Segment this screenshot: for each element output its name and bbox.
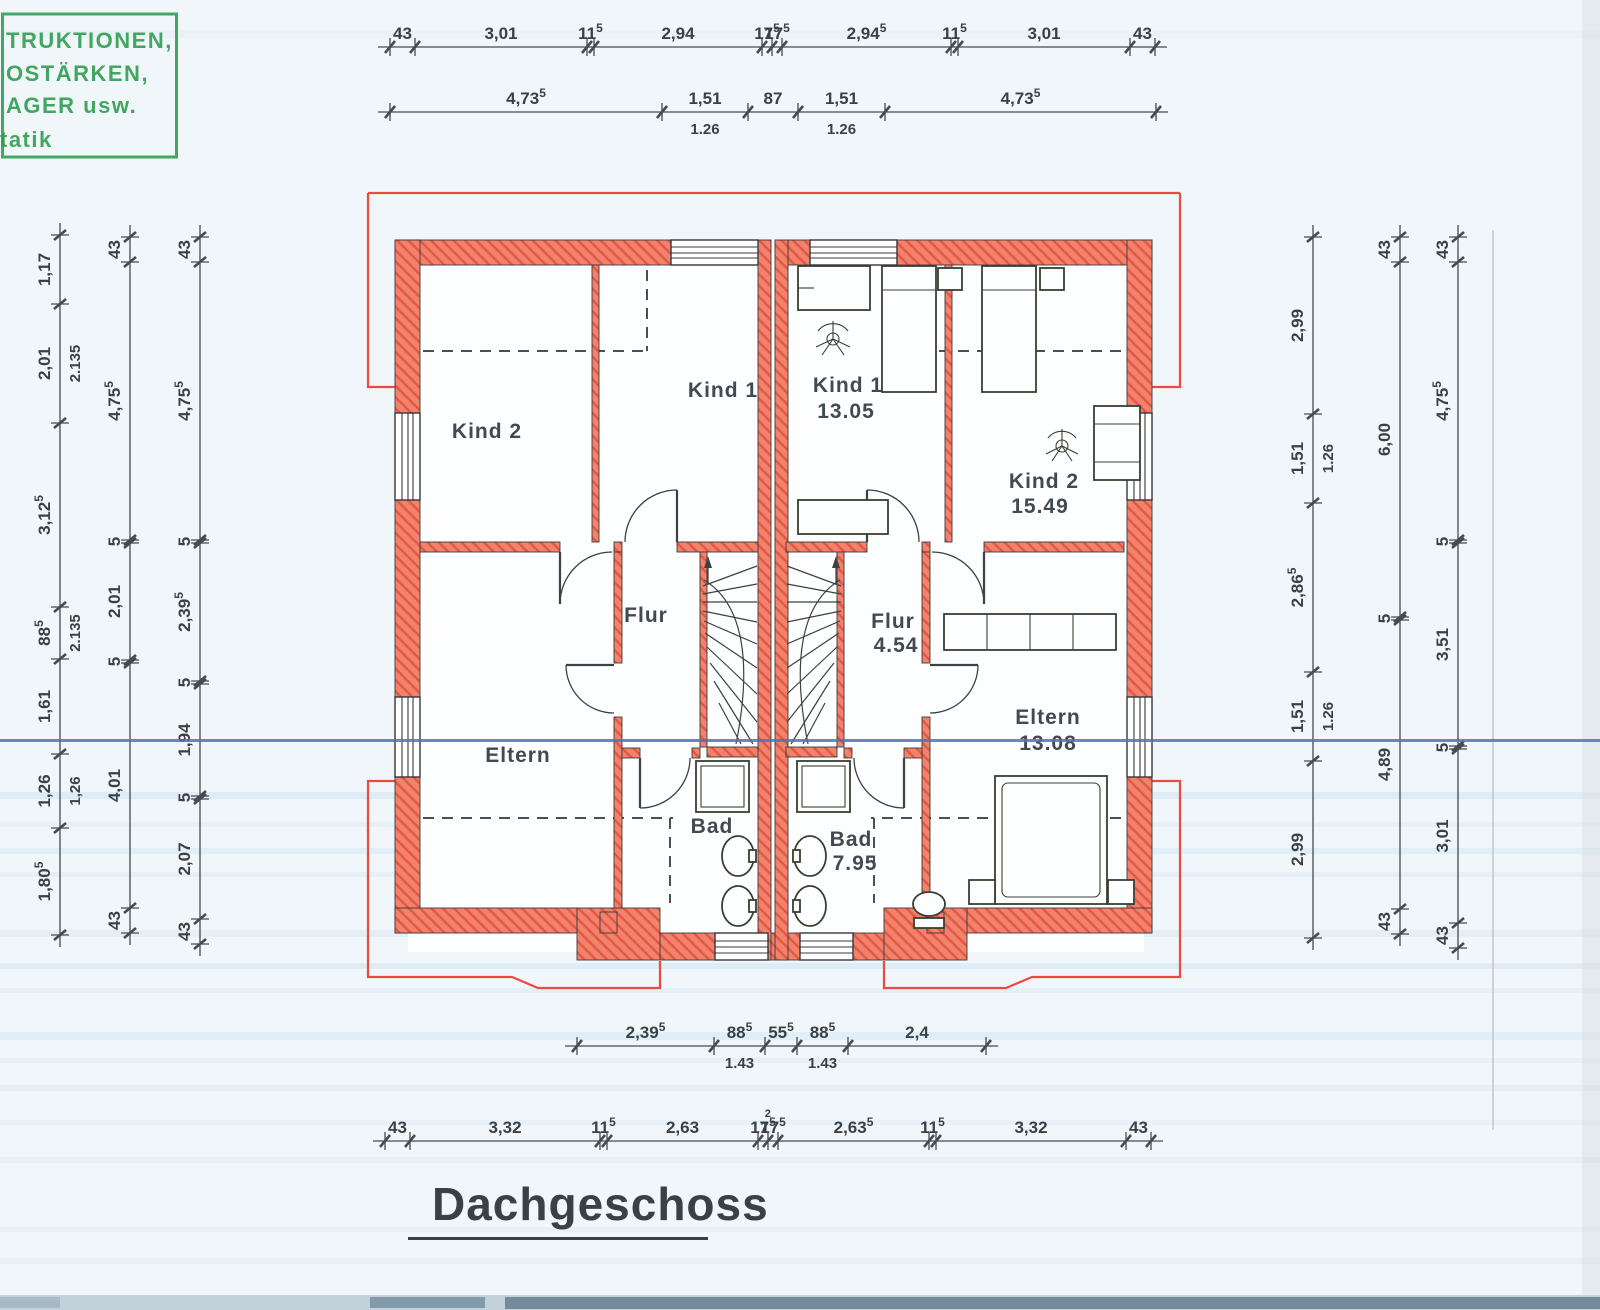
room-area-kind1-right: 13.05 (817, 400, 875, 423)
title-text: Dachgeschoss (432, 1178, 769, 1230)
stamp-line: tatik (0, 127, 53, 152)
scan-bottom-stripe (0, 1295, 1600, 1310)
room-area-flur-right: 4.54 (874, 634, 919, 657)
svg-text:87: 87 (764, 89, 783, 108)
svg-text:2,07: 2,07 (175, 842, 194, 875)
svg-text:115: 115 (920, 1115, 945, 1137)
svg-text:2,99: 2,99 (1288, 833, 1307, 866)
room-label-kind1-left: Kind 1 (688, 379, 758, 402)
dim-chain-right-inner: 2,991,511.262,8651,511.262,99 (1285, 225, 1337, 950)
svg-text:2,4: 2,4 (905, 1023, 929, 1042)
svg-text:1.43: 1.43 (808, 1055, 837, 1072)
svg-text:1,51: 1,51 (825, 89, 858, 108)
room-label-flur-right: Flur (871, 610, 915, 633)
svg-text:5: 5 (105, 657, 124, 666)
svg-text:43: 43 (175, 922, 194, 941)
svg-text:2,635: 2,635 (834, 1115, 874, 1137)
svg-text:43: 43 (1133, 24, 1152, 43)
svg-text:1.26: 1.26 (690, 121, 719, 138)
svg-text:1,26: 1,26 (67, 776, 84, 805)
svg-text:115: 115 (578, 21, 603, 43)
svg-text:4,735: 4,735 (1001, 86, 1041, 108)
svg-text:3,32: 3,32 (1014, 1118, 1047, 1137)
svg-text:175: 175 (764, 21, 790, 43)
svg-text:2,99: 2,99 (1288, 309, 1307, 342)
svg-text:43: 43 (388, 1118, 407, 1137)
toilet (913, 892, 945, 928)
svg-text:2.135: 2.135 (67, 345, 84, 383)
room-label-kind2-right: Kind 2 (1009, 470, 1079, 493)
window-top-left (671, 240, 758, 265)
svg-text:43: 43 (175, 240, 194, 259)
svg-text:4,735: 4,735 (506, 86, 546, 108)
svg-text:1,61: 1,61 (35, 690, 54, 723)
desk-kind1 (798, 266, 870, 310)
svg-text:5: 5 (1375, 614, 1394, 623)
svg-text:1,51: 1,51 (688, 89, 721, 108)
dim-chain-top-upper: 433,011152,941751752,9451153,0143 (378, 21, 1167, 56)
svg-text:1,17: 1,17 (35, 253, 54, 286)
svg-text:2,865: 2,865 (1285, 567, 1307, 607)
svg-text:1,51: 1,51 (1288, 442, 1307, 475)
svg-text:5: 5 (175, 678, 194, 687)
sink-tap (793, 850, 800, 862)
svg-text:2.135: 2.135 (67, 614, 84, 652)
svg-text:2,63: 2,63 (666, 1118, 699, 1137)
svg-text:3,125: 3,125 (32, 495, 54, 535)
svg-text:3,01: 3,01 (1433, 819, 1452, 852)
svg-text:43: 43 (1129, 1118, 1148, 1137)
room-area-kind2-right: 15.49 (1011, 495, 1069, 518)
sink-tap (749, 900, 756, 912)
sink-tap (749, 850, 756, 862)
svg-text:6,00: 6,00 (1375, 423, 1394, 456)
desk-kind2 (1094, 406, 1140, 480)
svg-text:5: 5 (105, 537, 124, 546)
room-label-eltern-right: Eltern (1015, 706, 1081, 729)
svg-text:4,755: 4,755 (102, 381, 124, 421)
dim-chain-left-mid: 434,75552,0154,0143 (102, 225, 139, 945)
svg-text:43: 43 (1375, 912, 1394, 931)
svg-text:4,01: 4,01 (105, 769, 124, 802)
svg-text:2,395: 2,395 (172, 592, 194, 632)
room-label-bad-left: Bad (691, 815, 734, 838)
dim-chain-left-outer: 1,172,012.1353,1258852.1351,611,261,261,… (32, 223, 84, 947)
room-label-eltern-left: Eltern (485, 744, 551, 767)
room-label-kind2-left: Kind 2 (452, 420, 522, 443)
svg-text:5: 5 (175, 537, 194, 546)
svg-text:43: 43 (105, 240, 124, 259)
svg-text:1.43: 1.43 (725, 1055, 754, 1072)
statics-stamp: TRUKTIONEN, OSTÄRKEN, AGER usw. tatik (0, 14, 177, 157)
svg-text:5: 5 (175, 793, 194, 802)
svg-text:115: 115 (591, 1115, 616, 1137)
svg-text:3,32: 3,32 (488, 1118, 521, 1137)
room-area-eltern-right: 13.08 (1019, 732, 1077, 755)
svg-text:1,805: 1,805 (32, 861, 54, 901)
svg-text:3,51: 3,51 (1433, 628, 1452, 661)
dim-chain-right-mid: 436,0054,8943 (1375, 225, 1409, 946)
svg-text:1,51: 1,51 (1288, 700, 1307, 733)
floor-plan-sheet: TRUKTIONEN, OSTÄRKEN, AGER usw. tatik (0, 0, 1600, 1310)
window-bottom-left (715, 933, 768, 960)
svg-text:43: 43 (105, 911, 124, 930)
svg-text:3,01: 3,01 (484, 24, 517, 43)
dim-chain-left-inner: 434,75552,39551,9452,0743 (172, 225, 209, 956)
svg-text:43: 43 (1433, 926, 1452, 945)
shower-tray (696, 761, 749, 812)
dim-chain-bottom-upper: 2,3958851.435558851.432,4 (565, 1020, 998, 1072)
room-label-kind1-right: Kind 1 (813, 374, 883, 397)
svg-text:2,945: 2,945 (847, 21, 887, 43)
title-underline (408, 1237, 708, 1240)
svg-text:115: 115 (942, 21, 967, 43)
window-top-right (810, 240, 897, 265)
svg-text:1,26: 1,26 (35, 774, 54, 807)
svg-text:5: 5 (1433, 537, 1452, 546)
window-right-lower (1127, 697, 1152, 777)
shower-tray (797, 761, 850, 812)
svg-text:4,89: 4,89 (1375, 748, 1394, 781)
sink-tap (793, 900, 800, 912)
svg-text:2,94: 2,94 (661, 24, 695, 43)
svg-text:885: 885 (32, 620, 54, 646)
svg-text:1.26: 1.26 (1320, 702, 1337, 731)
stamp-line: AGER usw. (6, 93, 137, 118)
svg-text:43: 43 (1433, 240, 1452, 259)
room-label-bad-right: Bad (830, 828, 873, 851)
svg-text:2,01: 2,01 (35, 347, 54, 380)
dim-chain-bottom-lower: 433,321152,6317521752,6351153,3243 (373, 1108, 1163, 1150)
window-left-lower (395, 697, 420, 777)
wardrobe-eltern (944, 614, 1116, 650)
svg-text:5: 5 (1433, 743, 1452, 752)
svg-text:175: 175 (760, 1115, 786, 1137)
window-bottom-right (800, 933, 853, 960)
stamp-line: TRUKTIONEN, (6, 28, 173, 53)
svg-text:2,01: 2,01 (105, 585, 124, 618)
svg-text:43: 43 (393, 24, 412, 43)
scan-fold-line (0, 739, 1600, 742)
svg-text:43: 43 (1375, 240, 1394, 259)
room-area-bad-right: 7.95 (833, 852, 878, 875)
plan-canvas: TRUKTIONEN, OSTÄRKEN, AGER usw. tatik (0, 0, 1600, 1310)
window-left-upper (395, 413, 420, 500)
svg-text:4,755: 4,755 (1430, 381, 1452, 421)
svg-text:1.26: 1.26 (827, 121, 856, 138)
stamp-line: OSTÄRKEN, (6, 61, 149, 86)
svg-text:3,01: 3,01 (1027, 24, 1060, 43)
dim-chain-top-lower: 4,7351,511.26871,511.264,735 (378, 86, 1168, 138)
dresser-kind1 (798, 500, 888, 534)
room-label-flur-left: Flur (624, 604, 668, 627)
svg-text:1.26: 1.26 (1320, 444, 1337, 473)
svg-text:4,755: 4,755 (172, 381, 194, 421)
